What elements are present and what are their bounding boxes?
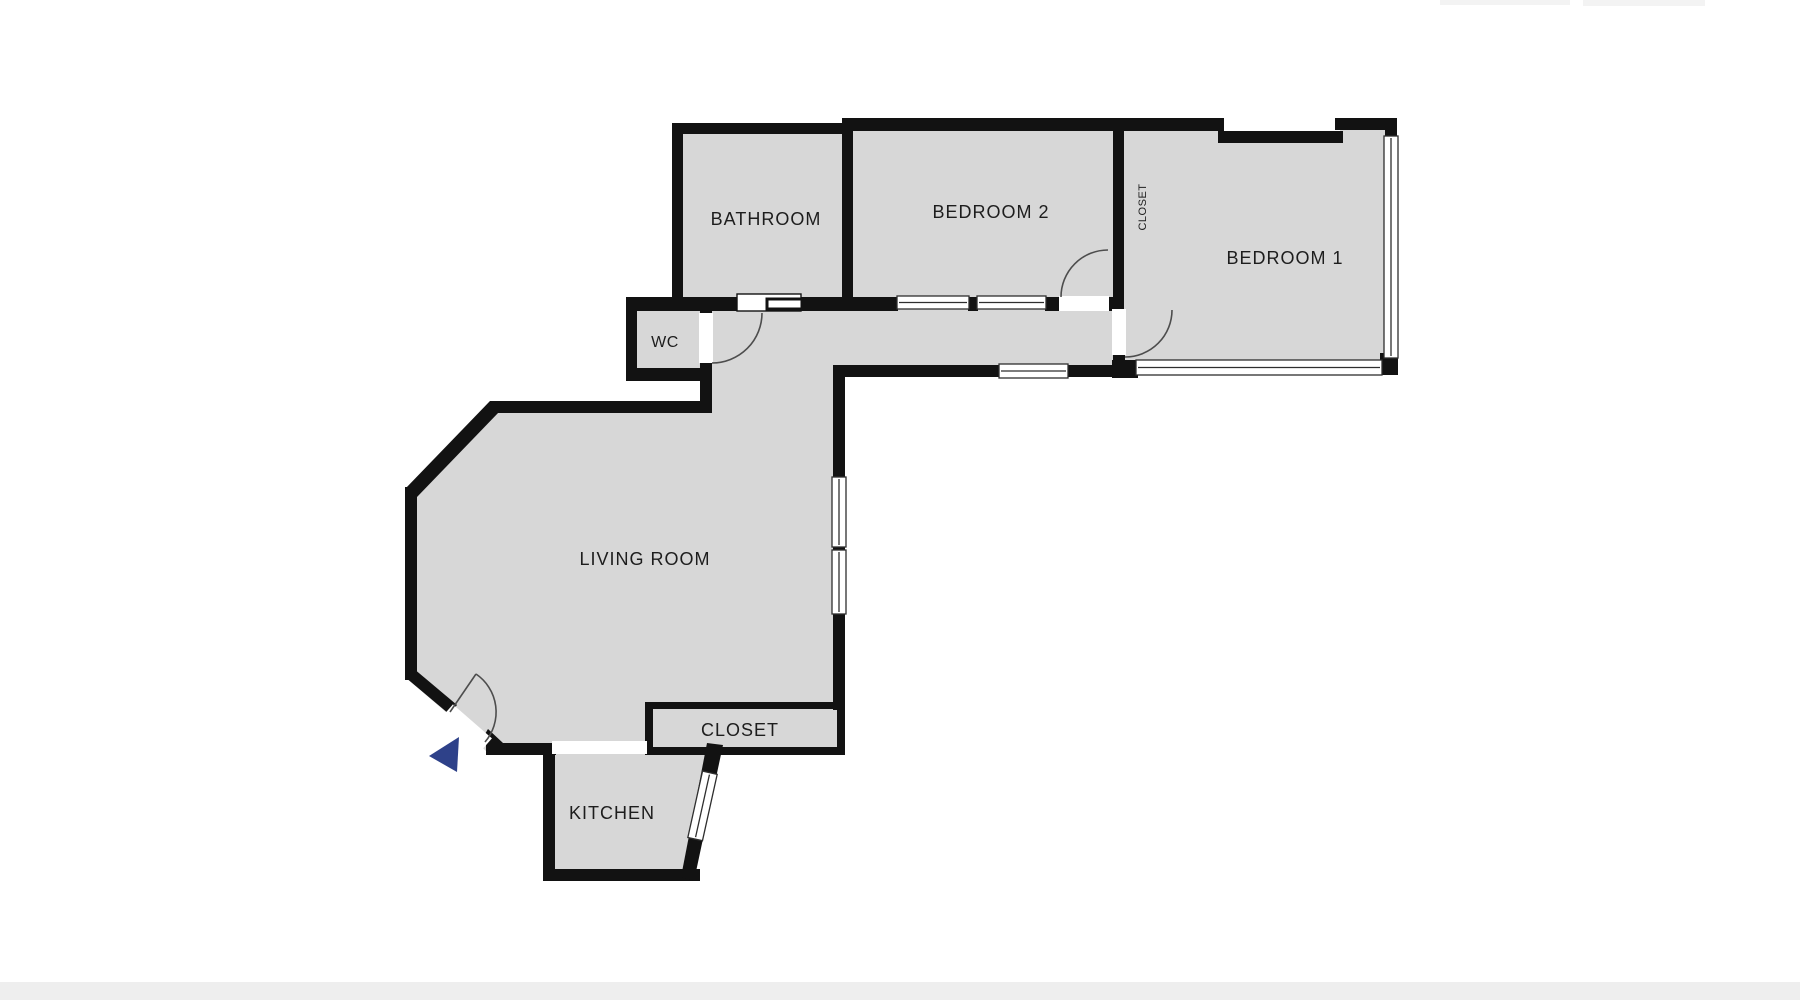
- wall: [543, 743, 555, 881]
- label-closet: CLOSET: [701, 720, 779, 740]
- floor-plan-canvas: BATHROOM BEDROOM 2 CLOSET BEDROOM 1 WC L…: [0, 0, 1800, 1000]
- label-bedroom1: BEDROOM 1: [1226, 248, 1343, 268]
- pocket-door-panel: [767, 299, 802, 309]
- wall: [1112, 360, 1138, 378]
- bedroom1-door-opening: [1112, 309, 1126, 355]
- wall: [842, 118, 853, 311]
- label-wc: WC: [651, 334, 679, 351]
- wall: [833, 365, 845, 478]
- wall: [645, 747, 845, 755]
- room-living: [405, 310, 845, 753]
- wc-door-opening: [699, 313, 713, 363]
- wall: [626, 368, 712, 381]
- wall: [543, 869, 700, 881]
- wall: [672, 123, 683, 311]
- wall: [1113, 118, 1124, 310]
- wall: [672, 123, 853, 134]
- label-kitchen: KITCHEN: [569, 803, 655, 823]
- label-living-room: LIVING ROOM: [579, 549, 710, 569]
- label-closet-top: CLOSET: [1137, 183, 1149, 230]
- wall: [645, 702, 845, 709]
- wall: [800, 297, 898, 311]
- bathroom-sliding-door: [737, 294, 802, 311]
- kitchen-doorway-opening: [552, 741, 647, 754]
- wall: [405, 487, 417, 680]
- wall: [840, 365, 1000, 377]
- entry-arrow-icon: [429, 737, 459, 772]
- label-bedroom2: BEDROOM 2: [932, 202, 1049, 222]
- toolbar-remnant: [1583, 0, 1705, 6]
- bedroom2-door-opening: [1059, 296, 1109, 311]
- wall: [833, 613, 845, 710]
- floor-plan-page: BATHROOM BEDROOM 2 CLOSET BEDROOM 1 WC L…: [0, 0, 1800, 1000]
- room-bedroom1: [1113, 118, 1397, 373]
- wall: [490, 401, 703, 413]
- toolbar-remnant: [1440, 0, 1570, 5]
- wall: [1218, 131, 1343, 143]
- bottom-bar: [0, 982, 1800, 1000]
- wall: [1108, 297, 1124, 311]
- wall: [842, 118, 1224, 131]
- label-bathroom: BATHROOM: [711, 209, 822, 229]
- wall: [626, 297, 738, 311]
